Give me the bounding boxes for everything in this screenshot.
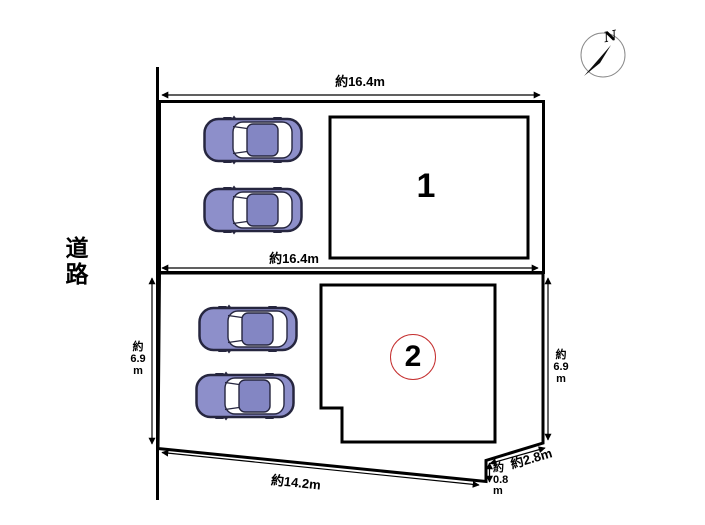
dim-label-line: m: [122, 365, 154, 377]
site-plan: 道路 約16.4m 約16.4m 約 6.9 m 約 6.9 m 約14.2m …: [0, 0, 705, 525]
north-label: N: [602, 28, 618, 46]
dim-label-line: 約: [122, 341, 154, 353]
dim-label-lot2-notch: 約 0.8 m: [493, 463, 521, 498]
dim-label-line: 約: [493, 463, 521, 475]
dim-label-lot2-left-depth: 約 6.9 m: [122, 341, 154, 377]
car-lot2-2: [197, 372, 294, 421]
dim-label-line: m: [545, 373, 577, 385]
dim-label-line: 6.9: [122, 353, 154, 365]
building-2-badge: 2: [390, 334, 436, 380]
car-lot2-1: [200, 305, 297, 354]
dim-label-line: 約: [545, 349, 577, 361]
dim-label-line: 6.9: [545, 361, 577, 373]
road-label: 道路: [62, 236, 88, 288]
building-1-number: 1: [398, 164, 454, 208]
building-2-number: 2: [405, 340, 422, 374]
dim-label-lot2-right-depth: 約 6.9 m: [545, 349, 577, 385]
car-lot1-1: [205, 116, 302, 165]
dim-label-lot1-bottom-width: 約16.4m: [244, 248, 344, 267]
car-lot1-2: [205, 186, 302, 235]
dim-label-lot1-top-width: 約16.4m: [310, 71, 410, 90]
dim-label-line: m: [493, 486, 521, 498]
